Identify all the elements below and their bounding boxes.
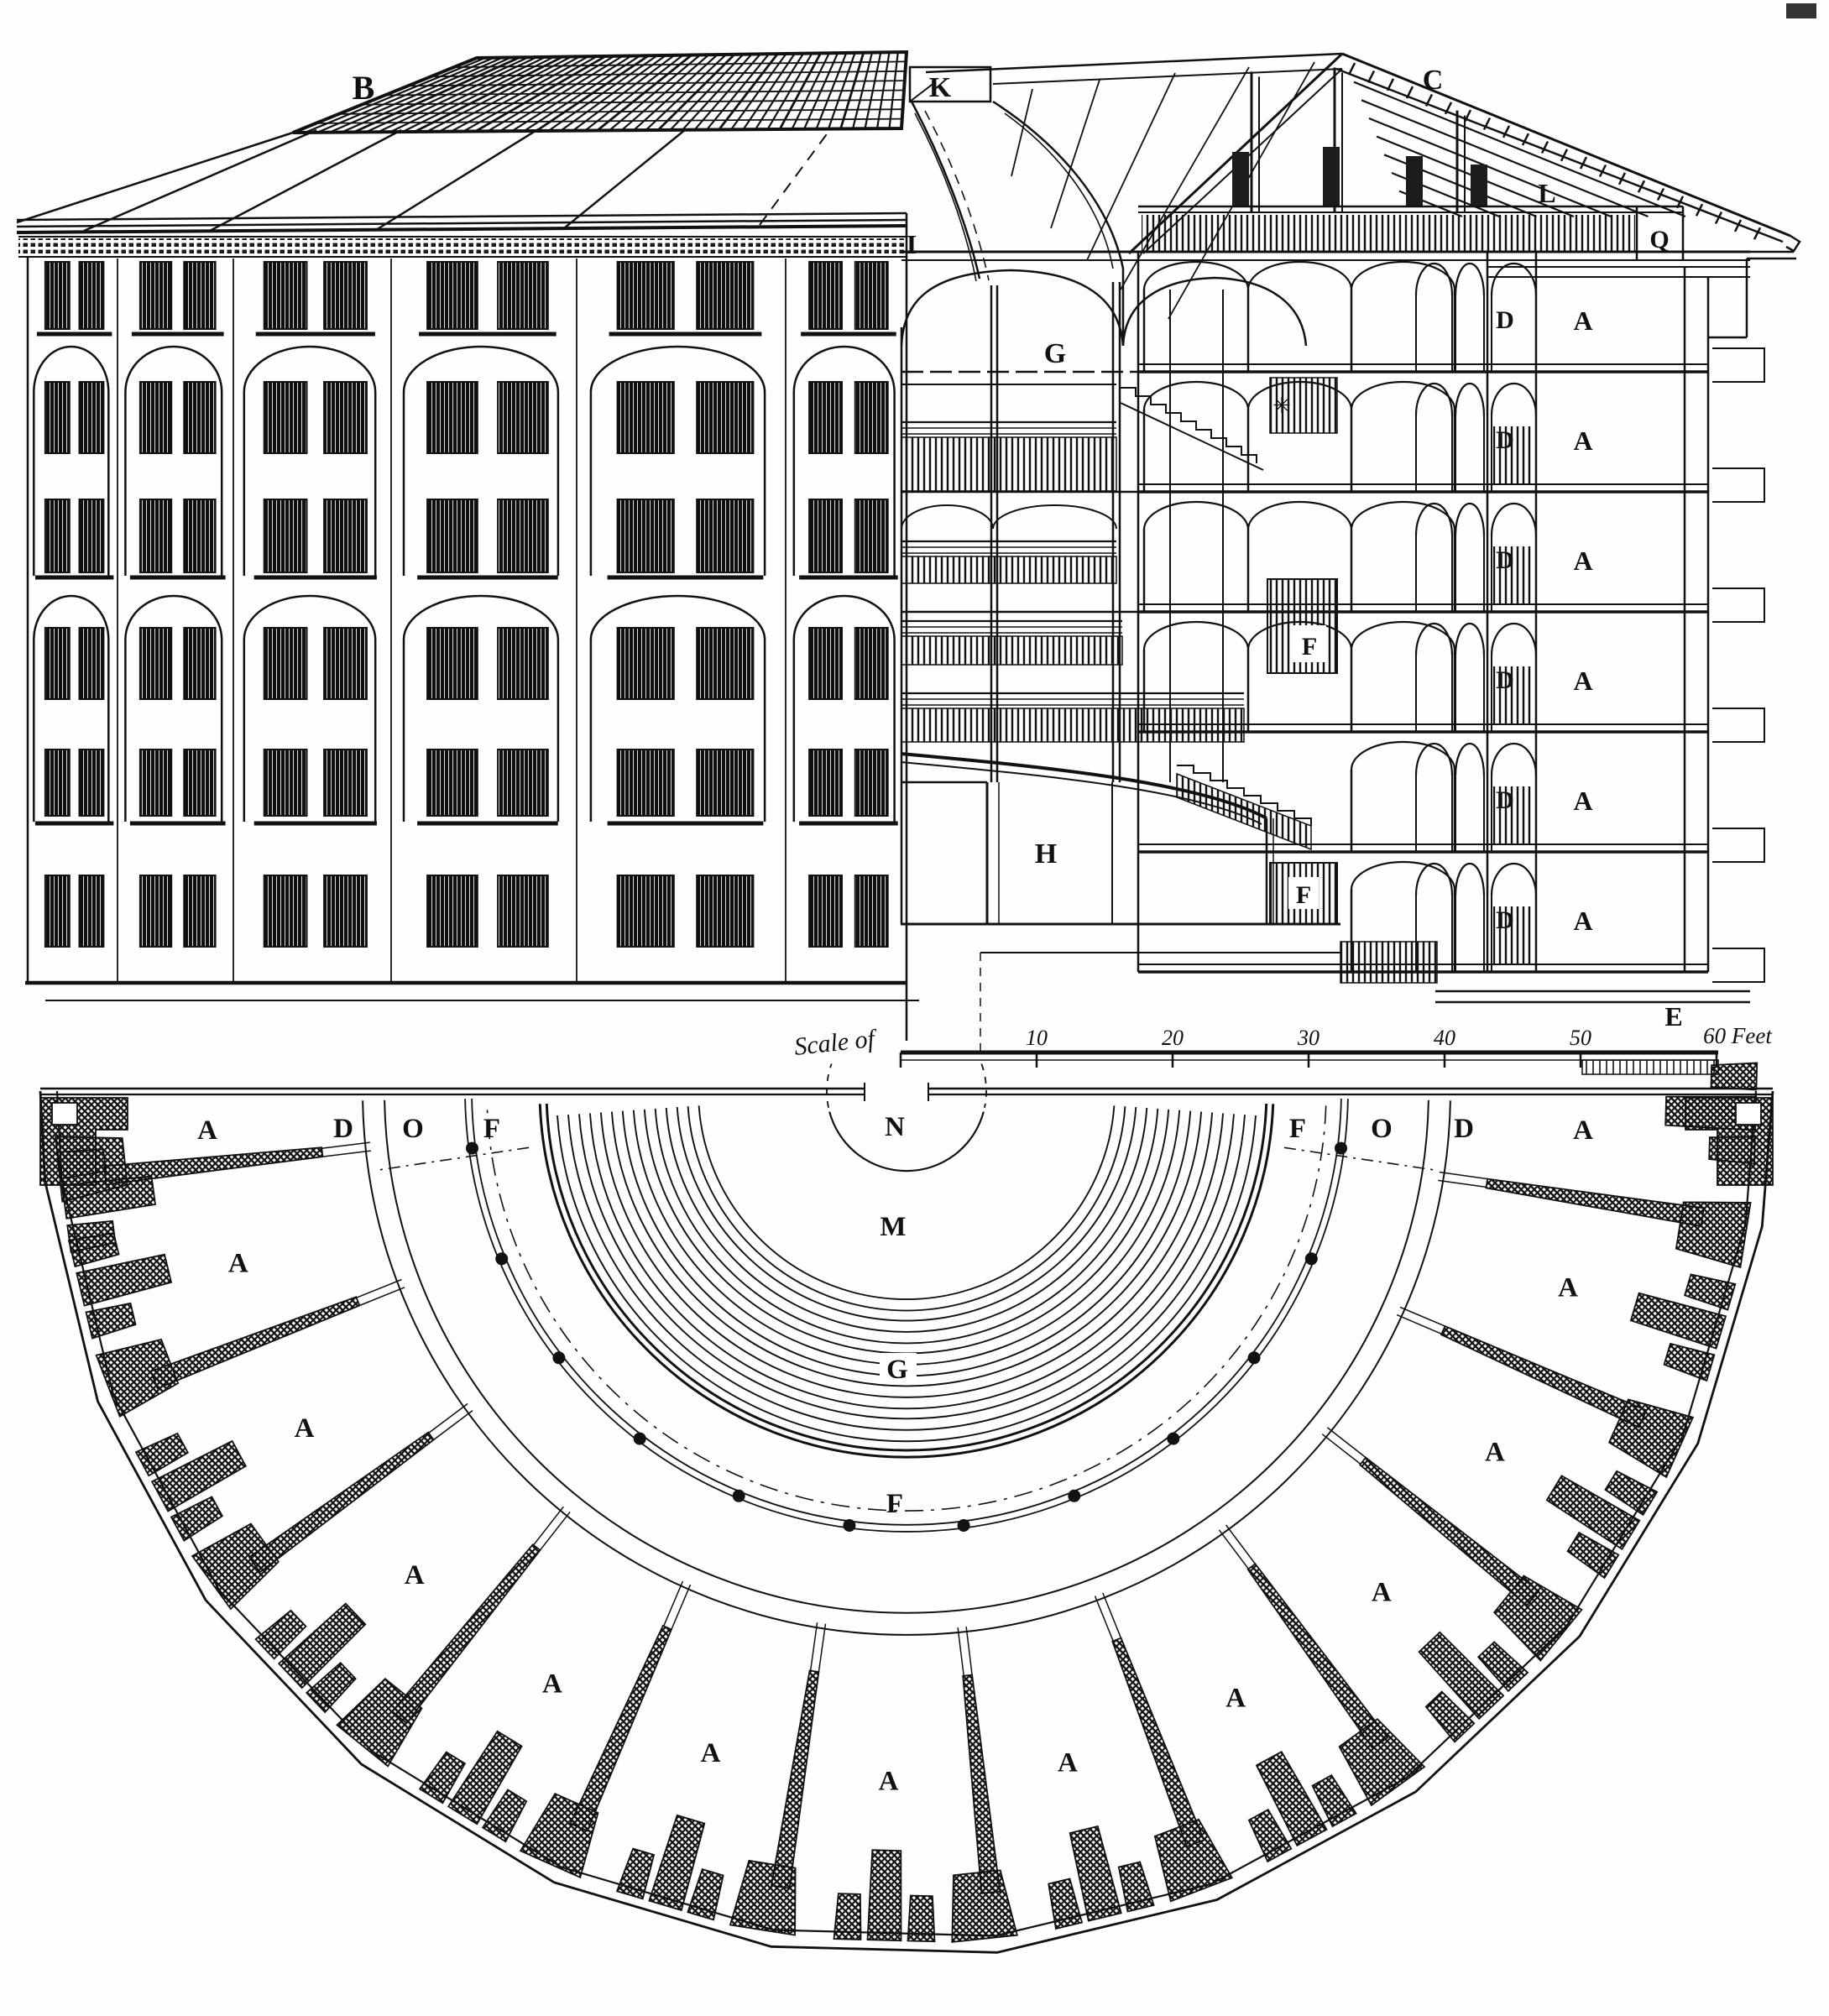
svg-text:A: A [542, 1669, 562, 1699]
svg-text:Q: Q [1649, 226, 1669, 253]
svg-text:60 Feet: 60 Feet [1703, 1023, 1773, 1048]
svg-text:M: M [880, 1212, 906, 1242]
svg-text:D: D [1454, 1114, 1474, 1144]
svg-text:A: A [1573, 786, 1592, 816]
svg-text:50: 50 [1570, 1026, 1591, 1050]
svg-text:E: E [1664, 1001, 1682, 1032]
svg-text:A: A [1558, 1273, 1578, 1303]
svg-text:G: G [1044, 338, 1066, 369]
svg-text:A: A [1573, 666, 1592, 696]
svg-text:A: A [1225, 1683, 1246, 1713]
svg-text:A: A [295, 1413, 315, 1444]
svg-text:A: A [228, 1248, 248, 1278]
svg-text:F: F [886, 1489, 903, 1519]
svg-text:D: D [1496, 906, 1514, 934]
svg-text:A: A [1573, 546, 1592, 576]
svg-text:A: A [405, 1560, 425, 1590]
svg-text:F: F [483, 1114, 500, 1144]
svg-text:D: D [1496, 306, 1514, 334]
svg-text:A: A [879, 1767, 899, 1797]
svg-text:D: D [1496, 786, 1514, 814]
svg-text:20: 20 [1162, 1026, 1184, 1050]
svg-text:H: H [1035, 838, 1057, 870]
svg-text:I: I [907, 229, 917, 259]
svg-text:F: F [1302, 633, 1317, 661]
svg-text:A: A [1058, 1747, 1078, 1778]
svg-text:K: K [929, 72, 952, 103]
svg-text:F: F [1289, 1114, 1306, 1144]
svg-text:F: F [1296, 881, 1311, 909]
svg-text:N: N [885, 1112, 905, 1142]
svg-text:30: 30 [1297, 1026, 1319, 1050]
svg-text:D: D [1496, 426, 1514, 454]
svg-text:A: A [1372, 1577, 1392, 1607]
svg-text:O: O [402, 1114, 424, 1144]
svg-text:A: A [1573, 426, 1592, 456]
svg-text:D: D [333, 1114, 353, 1144]
svg-text:C: C [1423, 65, 1444, 96]
svg-text:A: A [1573, 906, 1592, 936]
svg-text:A: A [1485, 1438, 1505, 1468]
svg-text:D: D [1496, 666, 1514, 694]
svg-text:A: A [197, 1115, 217, 1146]
svg-text:O: O [1371, 1114, 1393, 1144]
svg-text:B: B [353, 69, 375, 107]
svg-text:A: A [701, 1738, 721, 1768]
svg-text:40: 40 [1434, 1026, 1455, 1050]
svg-text:A: A [1573, 1115, 1593, 1146]
svg-text:10: 10 [1026, 1026, 1048, 1050]
svg-text:A: A [1573, 306, 1592, 336]
svg-text:L: L [1538, 178, 1555, 208]
svg-text:D: D [1496, 546, 1514, 574]
svg-text:G: G [886, 1355, 908, 1385]
svg-text:✳: ✳ [1272, 394, 1291, 418]
